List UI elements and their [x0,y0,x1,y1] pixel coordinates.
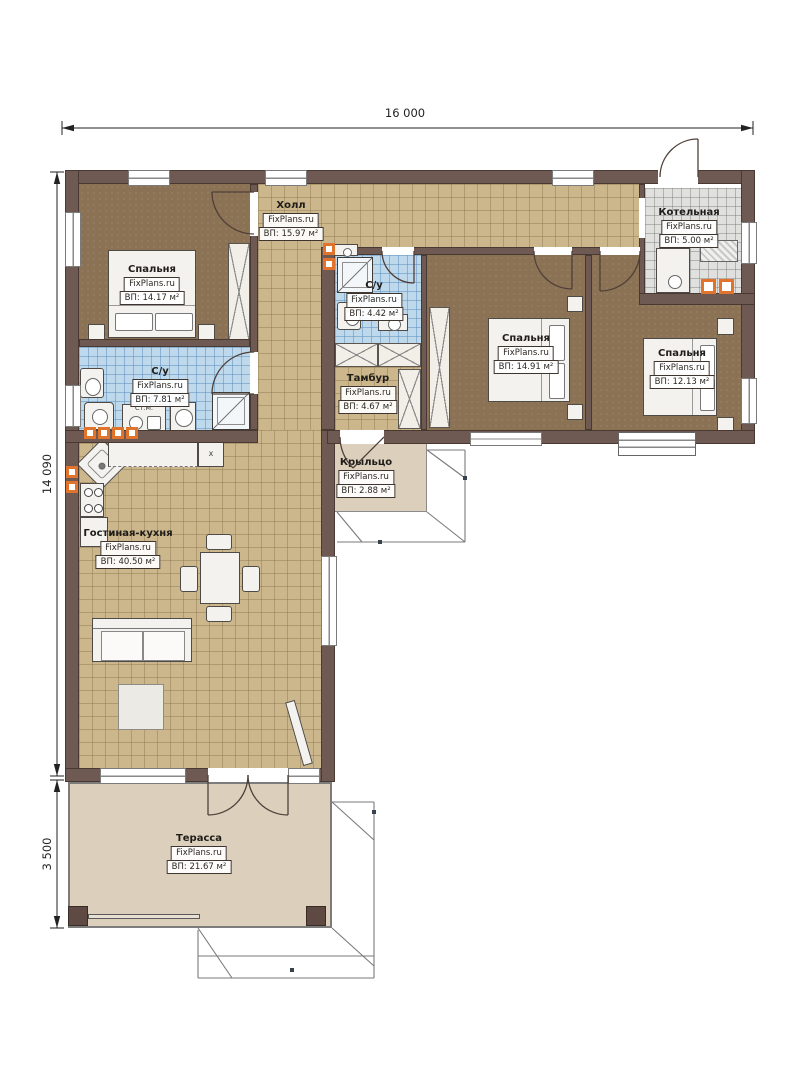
radiator [84,427,96,439]
room-area: ВП: 21.67 м² [167,860,232,875]
cabinet-mark: x [199,442,223,466]
room-label-living: Гостиная-кухня FixPlans.ru ВП: 40.50 м² [83,528,172,569]
room-area: ВП: 14.91 м² [494,360,559,375]
wall-segment [321,247,335,430]
dimension-terrace: 3 500 [40,838,54,871]
room-area: ВП: 7.81 м² [130,393,189,408]
room-name: Спальня [658,348,706,359]
window [470,432,542,446]
door-opening [639,198,645,238]
window [741,222,757,264]
sink-vanity [84,402,114,430]
window [265,170,307,186]
watermark: FixPlans.ru [100,541,156,556]
chair [206,606,232,622]
nightstand [88,324,105,340]
wall-segment [79,339,250,347]
door-opening [250,192,258,236]
radiator [98,427,110,439]
room-area: ВП: 40.50 м² [96,555,161,570]
door-opening [340,430,384,444]
shower [212,392,250,430]
room-name: С/у [151,366,169,377]
dining-table [200,552,240,604]
watermark: FixPlans.ru [346,293,402,308]
watermark: FixPlans.ru [340,386,396,401]
room-area: ВП: 4.42 м² [344,307,403,322]
door-opening [208,768,288,782]
nightstand [567,404,583,420]
radiator [112,427,124,439]
watermark: FixPlans.ru [132,379,188,394]
wardrobe [429,307,450,428]
room-label-bedroom1: Спальня FixPlans.ru ВП: 14.17 м² [120,264,185,305]
door-opening [250,352,258,394]
room-label-tambour: Тамбур FixPlans.ru ВП: 4.67 м² [338,373,397,414]
door-opening [534,247,572,255]
radiator [719,279,734,294]
kitchen-cabinet: x [198,441,224,467]
window [618,432,696,456]
room-label-hall: Холл FixPlans.ru ВП: 15.97 м² [259,200,324,241]
room-label-bedroom3: Спальня FixPlans.ru ВП: 12.13 м² [650,348,715,389]
room-area: ВП: 5.00 м² [659,234,718,249]
window [100,768,186,784]
boiler-unit [656,248,690,293]
wardrobe [335,343,378,367]
room-area: ВП: 2.88 м² [336,484,395,499]
room-name: Терасса [176,833,222,844]
room-name: Холл [276,200,305,211]
nightstand [198,324,215,340]
radiator [323,243,335,255]
room-label-bedroom2: Спальня FixPlans.ru ВП: 14.91 м² [494,333,559,374]
watermark: FixPlans.ru [661,220,717,235]
dimension-height: 14 090 [40,454,54,494]
room-label-boiler: Котельная FixPlans.ru ВП: 5.00 м² [658,207,719,248]
room-label-terrace: Терасса FixPlans.ru ВП: 21.67 м² [167,833,232,874]
watermark: FixPlans.ru [498,346,554,361]
window [65,212,81,267]
room-label-bath-small: С/у FixPlans.ru ВП: 4.42 м² [344,280,403,321]
radiator [701,279,716,294]
window [288,768,320,784]
nightstand [717,318,734,335]
door-opening [600,247,640,255]
floor-hall-horizontal [321,184,639,247]
door-opening [658,170,698,184]
radiator [66,481,78,493]
chair [206,534,232,550]
wall-segment [421,255,427,430]
window [321,556,337,646]
room-name: Спальня [502,333,550,344]
terrace-bench [88,914,200,919]
wall-segment [585,255,592,430]
terrace-post [68,906,88,926]
room-name: Котельная [658,207,719,218]
watermark: FixPlans.ru [124,277,180,292]
chair [180,566,198,592]
room-area: ВП: 14.17 м² [120,291,185,306]
wall-segment [639,293,755,305]
dimension-width: 16 000 [385,106,425,120]
kitchen-counter [108,441,198,467]
room-area: ВП: 15.97 м² [259,227,324,242]
window [741,378,757,424]
room-area: ВП: 4.67 м² [338,400,397,415]
floor-plan: Ст.М. x [0,0,792,1080]
window [128,170,170,186]
washbasin [334,244,358,256]
coffee-table [118,684,164,730]
toilet [80,368,104,398]
window [552,170,594,186]
radiator [323,258,335,270]
watermark: FixPlans.ru [263,213,319,228]
room-name: С/у [365,280,383,291]
room-area: ВП: 12.13 м² [650,375,715,390]
radiator [126,427,138,439]
room-name: Гостиная-кухня [83,528,172,539]
room-name: Тамбур [347,373,389,384]
room-label-bath-big: С/у FixPlans.ru ВП: 7.81 м² [130,366,189,407]
door-opening [382,247,414,255]
chair [242,566,260,592]
watermark: FixPlans.ru [338,470,394,485]
room-name: Спальня [128,264,176,275]
nightstand [567,296,583,312]
window [65,385,81,427]
stove [80,483,104,517]
wardrobe [378,343,421,367]
room-name: Крыльцо [340,457,392,468]
wall-segment [327,247,645,255]
watermark: FixPlans.ru [171,846,227,861]
room-label-porch: Крыльцо FixPlans.ru ВП: 2.88 м² [336,457,395,498]
wardrobe [398,369,421,429]
terrace-post [306,906,326,926]
wardrobe [228,243,250,341]
radiator [66,466,78,478]
watermark: FixPlans.ru [654,361,710,376]
sofa [92,618,192,662]
